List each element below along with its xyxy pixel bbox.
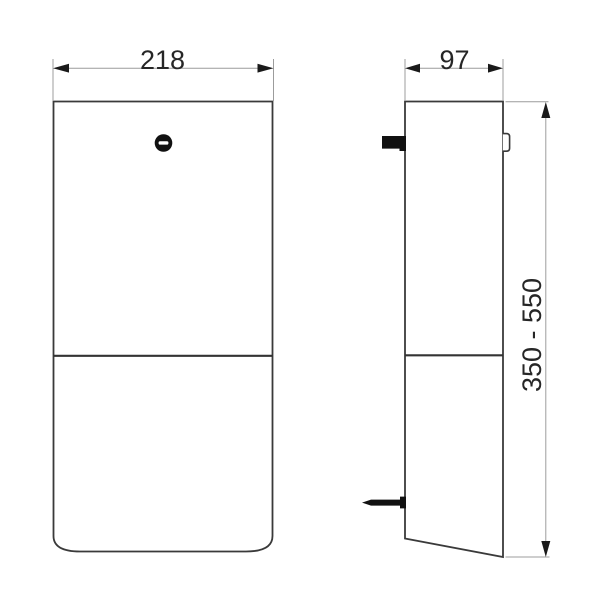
side-view: 97 350 - 550 bbox=[362, 45, 550, 557]
front-body-outline bbox=[54, 102, 273, 552]
arrow-right-icon bbox=[258, 64, 274, 73]
side-bottom-lever bbox=[362, 497, 406, 509]
technical-drawing: 218 97 bbox=[0, 0, 600, 600]
front-width-dimension: 218 bbox=[53, 45, 274, 101]
side-body-outline bbox=[405, 102, 503, 558]
front-view: 218 bbox=[53, 45, 274, 552]
arrow-left-icon bbox=[405, 64, 420, 73]
drawing-canvas: 218 97 bbox=[0, 0, 600, 600]
screw-slot bbox=[159, 141, 169, 144]
side-depth-label: 97 bbox=[439, 45, 469, 75]
arrow-right-icon bbox=[488, 64, 503, 73]
height-dimension: 350 - 550 bbox=[506, 102, 551, 557]
screw-slot-icon bbox=[155, 134, 173, 152]
front-width-label: 218 bbox=[140, 45, 185, 75]
side-depth-dimension: 97 bbox=[405, 45, 503, 101]
arrow-down-icon bbox=[541, 541, 550, 557]
height-range-label: 350 - 550 bbox=[517, 278, 547, 392]
arrow-left-icon bbox=[53, 64, 69, 73]
side-top-spout bbox=[382, 136, 406, 151]
arrow-up-icon bbox=[541, 102, 550, 118]
side-right-clip bbox=[503, 134, 510, 152]
